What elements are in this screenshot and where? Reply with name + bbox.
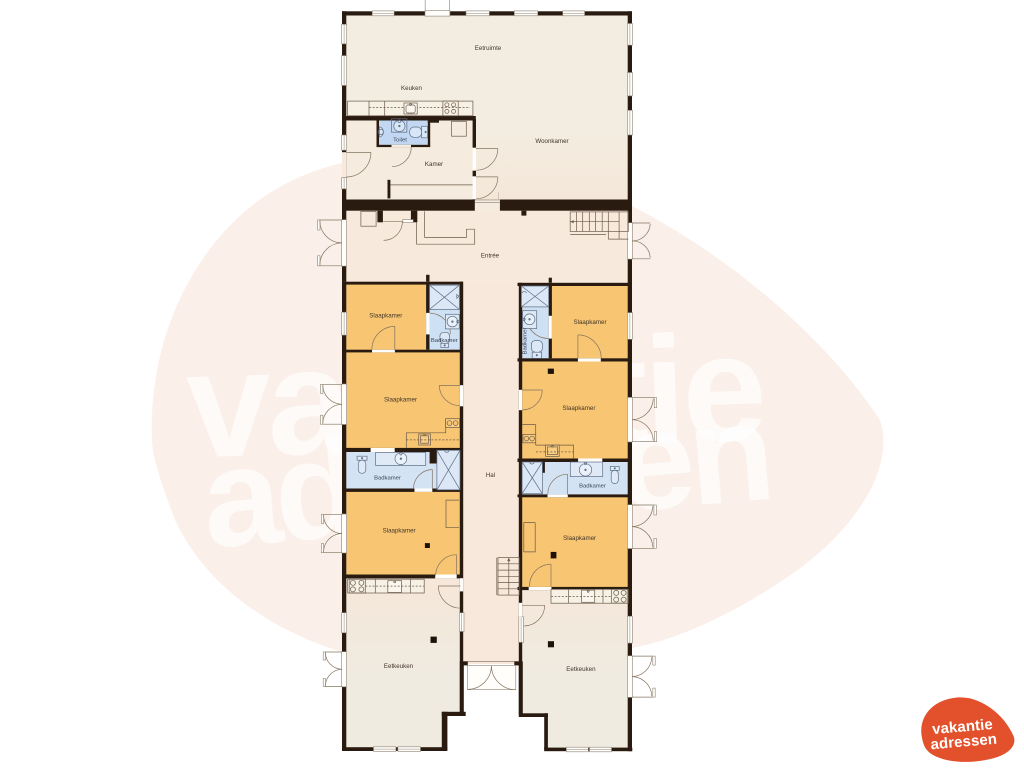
svg-text:Hal: Hal [486,472,495,479]
svg-text:Woonkamer: Woonkamer [535,138,568,145]
svg-text:Kamer: Kamer [425,161,443,168]
svg-text:Entrée: Entrée [481,253,500,260]
svg-text:Badkamer: Badkamer [579,484,606,490]
svg-text:Eetkeuken: Eetkeuken [384,663,414,670]
svg-text:Slaapkamer: Slaapkamer [383,527,416,534]
svg-text:Badkamer: Badkamer [374,476,401,482]
svg-text:Slaapkamer: Slaapkamer [384,396,417,403]
svg-text:Slaapkamer: Slaapkamer [573,319,606,326]
svg-text:Keuken: Keuken [401,85,423,92]
svg-text:Toilet: Toilet [393,138,407,144]
svg-text:Slaapkamer: Slaapkamer [369,312,402,319]
svg-text:Slaapkamer: Slaapkamer [563,535,596,542]
svg-text:Eetruimte: Eetruimte [475,45,502,52]
svg-text:Badkamer: Badkamer [523,328,529,355]
svg-text:Badkamer: Badkamer [431,338,458,344]
svg-text:Slaapkamer: Slaapkamer [562,405,595,412]
svg-text:Eetkeuken: Eetkeuken [566,666,596,673]
